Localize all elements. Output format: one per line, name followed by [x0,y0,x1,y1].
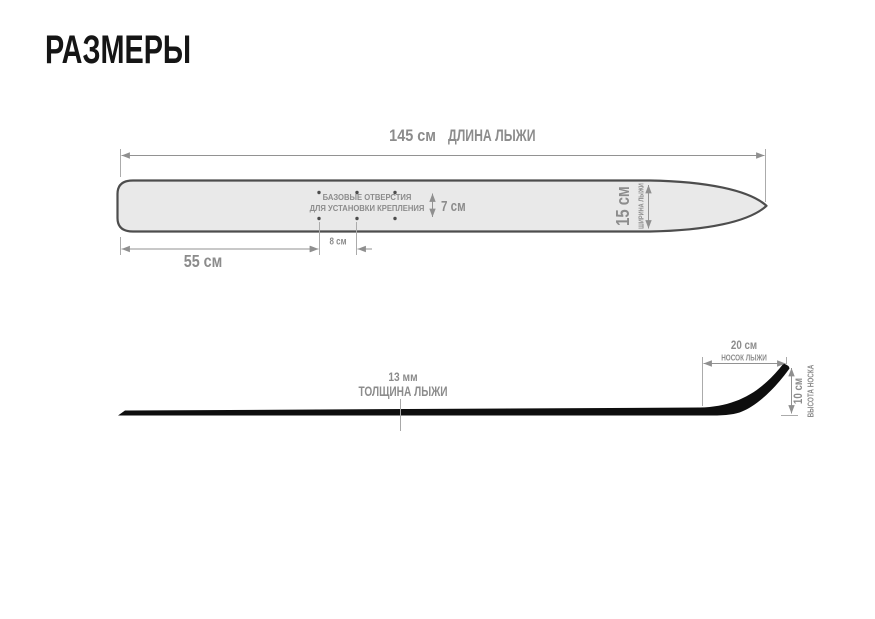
tip-height-caption: ВЫСОТА НОСКА [806,364,816,417]
diagram-canvas: БАЗОВЫЕ ОТВЕРСТИЯ ДЛЯ УСТАНОВКИ КРЕПЛЕНИ… [0,0,875,619]
width-value: 15 см [612,186,633,226]
thickness-value: 13 мм [388,371,417,384]
tip-length-value: 20 см [731,339,757,352]
side-view: 13 мм ТОЛЩИНА ЛЫЖИ 20 см НОСОК ЛЫЖИ 10 с… [118,339,816,431]
top-view: БАЗОВЫЕ ОТВЕРСТИЯ ДЛЯ УСТАНОВКИ КРЕПЛЕНИ… [118,127,767,271]
thickness-caption: ТОЛЩИНА ЛЫЖИ [358,384,447,400]
ski-side-profile [118,364,790,416]
tip-length-caption: НОСОК ЛЫЖИ [721,353,767,363]
binding-hole [317,217,320,220]
binding-hole [317,191,320,194]
binding-hole [355,217,358,220]
ski-dimensions-diagram: РАЗМЕРЫ БАЗОВЫЕ ОТВЕРСТИЯ ДЛЯ УСТАНОВКИ … [0,0,875,619]
tail-section-value: 55 см [184,252,223,272]
binding-hole [393,217,396,220]
hole-spacing-value: 8 см [329,236,346,247]
page-title: РАЗМЕРЫ [45,28,191,73]
holes-note-line2: ДЛЯ УСТАНОВКИ КРЕПЛЕНИЯ [310,204,425,213]
length-value: 145 см [389,127,436,145]
hole-rows-gap-value: 7 см [441,198,466,215]
holes-note-line1: БАЗОВЫЕ ОТВЕРСТИЯ [323,193,412,202]
tip-height-value: 10 см [792,378,805,404]
length-caption: ДЛИНА ЛЫЖИ [448,127,536,145]
width-caption: ШИРИНА ЛЫЖИ [638,183,646,229]
